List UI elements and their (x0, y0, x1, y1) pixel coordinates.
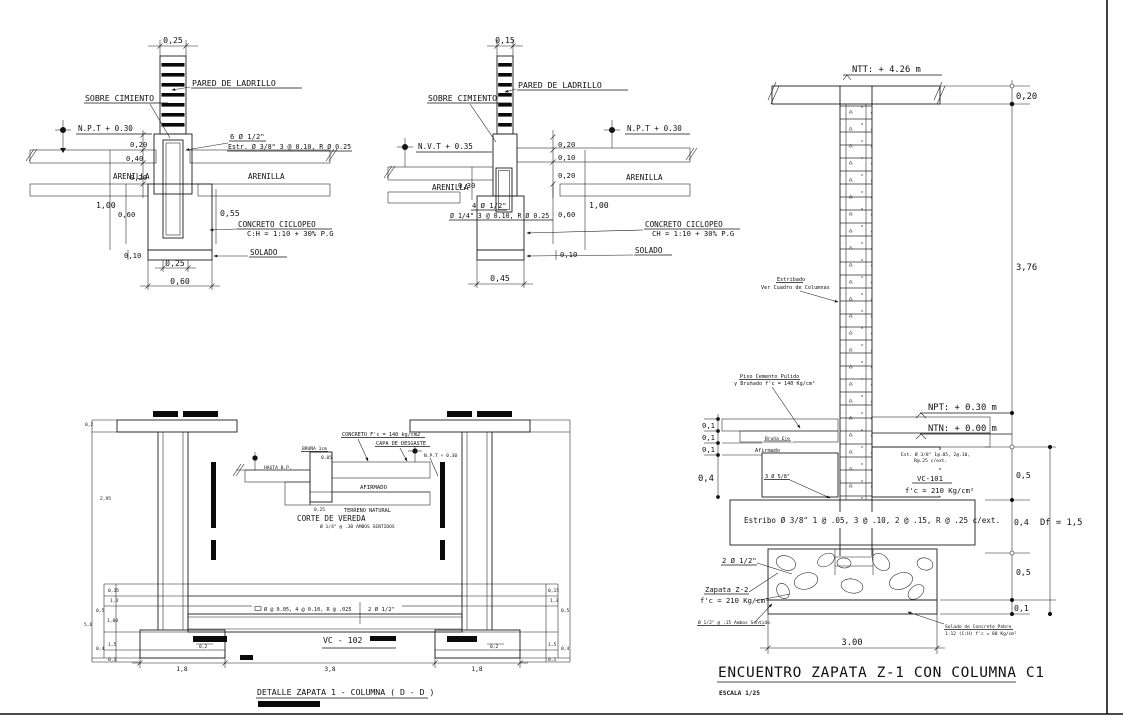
left-t-column (117, 411, 237, 630)
label-rebar-b: 4 Ø 1/2" (472, 201, 507, 210)
dim-c-300-text: 3.00 (841, 638, 862, 648)
dim-d-r0: 0,15 (548, 588, 559, 594)
label-arenilla-b-right: ARENILLA (626, 173, 663, 182)
scale-bar-d (258, 701, 320, 707)
label-estribo-b: Ø 1/4" 3 @ 0.10, R Ø 0.25 (450, 212, 549, 220)
label-capa-desgaste: CAPA DE DESGASTE (376, 441, 426, 447)
dim-a-020a: 0,20 (130, 140, 147, 149)
dim-d-l3: 1,00 (107, 618, 118, 624)
label-concreto-b: CONCRETO CICLOPEO (645, 220, 723, 229)
label-estribo-a: Estr. Ø 3/8" 3 @ 0.10, R Ø 0.25 (228, 143, 351, 151)
dim-c-300 (760, 614, 945, 654)
label-solado-pobre: Solado de Concreto Pobre (945, 624, 1012, 630)
dim-a-055: 0,55 (220, 208, 240, 218)
label-vc101: VC-101 (917, 474, 943, 483)
label-afirmado-v: AFIRMADO (360, 485, 388, 491)
label-estribado-c: Estribado (777, 277, 805, 283)
dim-a-025: 0,25 (163, 35, 183, 45)
right-footing-d (435, 630, 520, 658)
label-pared-ladrillo-a: PARED DE LADRILLO (192, 78, 276, 88)
floor-slab-b (517, 148, 697, 162)
label-est-vc101b: R@.25 c/ext. (914, 458, 947, 464)
ground-hatch-b-right (560, 184, 690, 196)
label-concreto-140: CONCRETO F'c = 140 kg/cm2 (342, 432, 420, 438)
dim-d-02a: 0,2 (199, 644, 208, 650)
detail-b-brick-wall (497, 56, 513, 134)
label-fc210-vc: f'c = 210 Kg/cm² (905, 486, 974, 495)
label-ver-cuadro-c: Ver Cuadro de Columnas (761, 285, 830, 291)
dim-c-01c: 0,1 (702, 445, 715, 454)
dim-a-010: 0,10 (124, 251, 141, 260)
level-marker-npt-b (604, 120, 620, 148)
vereda-left-ground (233, 452, 310, 476)
detail-b-cimiento-vereda: 0,15 PARED DE LADRILLO SOBRE CIMIENTO N.… (384, 35, 740, 288)
dim-c-01b: 0,1 (702, 433, 715, 442)
dim-b-020a: 0,20 (558, 140, 575, 149)
title-encuentro-zapata: ENCUENTRO ZAPATA Z-1 CON COLUMNA C1 (718, 665, 1045, 681)
label-sobre-cimiento-b: SOBRE CIMIENTO (428, 93, 497, 103)
dim-a-040: 0,40 (126, 154, 143, 163)
left-floor-layers-c (722, 419, 838, 497)
dim-chains-d-left (92, 420, 188, 662)
dim-d-left: 1,8 (176, 666, 187, 673)
ground-hatch-a-left (30, 184, 148, 196)
dim-chain-c-right (940, 80, 1056, 616)
dim-a-060: 0,60 (118, 210, 135, 219)
sheet-border (0, 0, 1123, 714)
detail-c-encuentro-zapata: NTT: + 4.26 m Estribado Ver Cuadro de Co… (697, 65, 1082, 697)
dim-c-01a: 0,1 (702, 421, 715, 430)
dim-d-l7: 0,1 (108, 657, 117, 663)
label-bruna-1cm: BRUÑA 1cm (302, 445, 327, 452)
dim-chain-b (472, 130, 585, 260)
label-concreto-a: CONCRETO CICLOPEO (238, 220, 316, 229)
dim-d-l4: 5,6 (84, 622, 93, 628)
caption-corte-vereda: CORTE DE VEREDA (297, 514, 366, 523)
label-concreto-b2: CH = 1:10 + 30% P.G (652, 229, 734, 238)
level-marker-npt-a (55, 120, 71, 153)
dim-b-100: 1,00 (589, 200, 609, 210)
label-ntt-c: NTT: + 4.26 m (852, 65, 921, 75)
dim-d-l1: 1,3 (110, 598, 119, 604)
label-npt-a: N.P.T + 0.30 (78, 124, 133, 133)
label-ntn-c: NTN: + 0.00 m (928, 424, 997, 434)
level-tick-ntn (916, 434, 926, 439)
dim-b-020b: 0,20 (558, 171, 575, 180)
dim-a-100: 1,00 (96, 200, 116, 210)
vereda-slab-layers (285, 458, 438, 505)
ground-hatch-a-right (198, 184, 330, 196)
top-beam-c (768, 82, 945, 104)
column-c1 (840, 86, 872, 556)
label-solado-a: SOLADO (250, 248, 278, 257)
label-pared-ladrillo-b: PARED DE LADRILLO (518, 80, 602, 90)
label-concreto-a2: C:H = 1:10 + 30% P.G (247, 229, 334, 238)
dim-a-020b: 0,20 (130, 173, 147, 182)
dim-v-005: 0,05 (321, 455, 332, 461)
label-2-rebar-c: 2 Ø 1/2" (722, 556, 757, 565)
label-nvt-b: N.V.T + 0.35 (418, 142, 473, 151)
inset-corte-de-vereda: HASTA B.P. AFIRMADO TERRENO NATURAL 0,25… (233, 432, 457, 530)
dim-b-015: 0,15 (495, 35, 515, 45)
label-solado-pobre2: 1:12 (C:H) f'c = 80 Kg/cm² (945, 631, 1017, 637)
vereda-slab-b (384, 166, 493, 180)
dim-b-030: 0,30 (458, 181, 475, 190)
label-slab-note2-d: 2 Ø 1/2" (368, 606, 395, 613)
dim-d-r5: 0,1 (548, 657, 557, 663)
label-npt-c: NPT: + 0.30 m (928, 403, 997, 413)
label-zapata-z2: Zapata Z-2 (705, 585, 748, 594)
dim-d-r2: 0,5 (561, 608, 570, 614)
dim-chains-d-right (462, 420, 570, 662)
dim-d-stem-a: 0,2 (85, 422, 94, 428)
label-afirmado-c: Afirmado (755, 448, 780, 454)
dim-d-r3: 1,5 (548, 642, 557, 648)
label-npt-b: N.P.T + 0.30 (627, 124, 682, 133)
vereda-left-hatch (245, 470, 310, 482)
sobrecimiento-a (148, 134, 212, 260)
dim-c-df: Df = 1,5 (1040, 518, 1082, 528)
label-sobre-cimiento-a: SOBRE CIMIENTO (85, 93, 154, 103)
dim-d-l6: 0,4 (96, 646, 105, 652)
dim-d-right: 1,8 (471, 666, 482, 673)
dim-a-060b: 0,60 (170, 276, 190, 286)
label-estribo-c: Estribo Ø 3/8" 1 @ .05, 3 @ .10, 2 @ .15… (744, 516, 1000, 525)
title-detalle-zapata: DETALLE ZAPATA 1 - COLUMNA ( D - D ) (257, 687, 434, 697)
dim-c-376: 3,76 (1016, 263, 1037, 273)
label-npt-v: N.P.T + 0.30 (424, 453, 457, 459)
dim-d-r4: 0,4 (561, 646, 570, 652)
cad-sheet: 0,25 PARED DE LADRILLO SOBRE CIMIENTO N.… (0, 0, 1123, 726)
label-3-5-8: 3 Ø 5/8" (765, 473, 790, 480)
dim-d-l5: 1,5 (108, 642, 117, 648)
right-t-column (410, 411, 530, 630)
caption-corte-vereda-sub: Ø 1/4" @ .30 AMBOS SENTIDOS (320, 523, 395, 530)
label-ambos-sentido: Ø 1/2" @ .15 Ambos Sentido (698, 619, 770, 626)
label-solado-b: SOLADO (635, 246, 663, 255)
label-rebar-a: 6 Ø 1/2" (230, 132, 265, 141)
dim-c-01d: 0,1 (1014, 603, 1029, 613)
label-brunado: y Bruñado f'c = 140 Kg/cm² (734, 381, 815, 387)
dim-c-020: 0,20 (1016, 92, 1037, 102)
detail-a-brick-wall (160, 56, 186, 134)
dim-c-05b: 0,5 (1016, 567, 1031, 577)
dim-a-025b: 0,25 (165, 258, 185, 268)
dim-d-stem-b: 2,95 (100, 496, 111, 502)
vereda-level-right (408, 446, 422, 462)
cad-drawing: 0,25 PARED DE LADRILLO SOBRE CIMIENTO N.… (0, 0, 1123, 726)
dim-v-025: 0,25 (314, 507, 325, 513)
label-escala-c: ESCALA 1/25 (719, 690, 760, 697)
dim-d-mid: 3,8 (324, 666, 335, 673)
dim-b-010b: 0,10 (560, 250, 577, 259)
detail-a-cimiento-corrido: 0,25 PARED DE LADRILLO SOBRE CIMIENTO N.… (26, 35, 352, 290)
ground-hatch-b-left (388, 192, 460, 203)
dim-b-010a: 0,10 (558, 153, 575, 162)
label-arenilla-a-right: ARENILLA (248, 172, 285, 181)
sobrecimiento-b (477, 134, 524, 260)
dim-c-05a: 0,5 (1016, 470, 1031, 480)
dim-b-045: 0,45 (490, 273, 510, 283)
dim-b-060: 0,60 (558, 210, 575, 219)
dim-d-r1: 1,3 (550, 598, 559, 604)
zapata-stones-c (768, 549, 937, 602)
label-vc102: VC - 102 (323, 635, 363, 645)
dim-c-04: 0,4 (698, 474, 714, 484)
level-marker-nvt-b (397, 138, 413, 167)
dim-d-l0: 0,15 (108, 588, 119, 594)
left-footing-d (140, 630, 253, 660)
label-slab-note-d: Ø @ 0.05, 4 @ 0.10, R @ .025 (264, 606, 351, 613)
solado-strip-c (768, 600, 937, 614)
dim-d-l2: 0,5 (96, 608, 105, 614)
dim-d-02b: 0,2 (490, 644, 499, 650)
level-tick-ntt (843, 75, 851, 80)
label-piso-pulido: Piso Cemento Pulido (740, 374, 799, 380)
dim-c-04b: 0,4 (1014, 517, 1029, 527)
label-est-vc101: Est. Ø 3/8" 1@.05, 2@.10, (901, 451, 970, 458)
